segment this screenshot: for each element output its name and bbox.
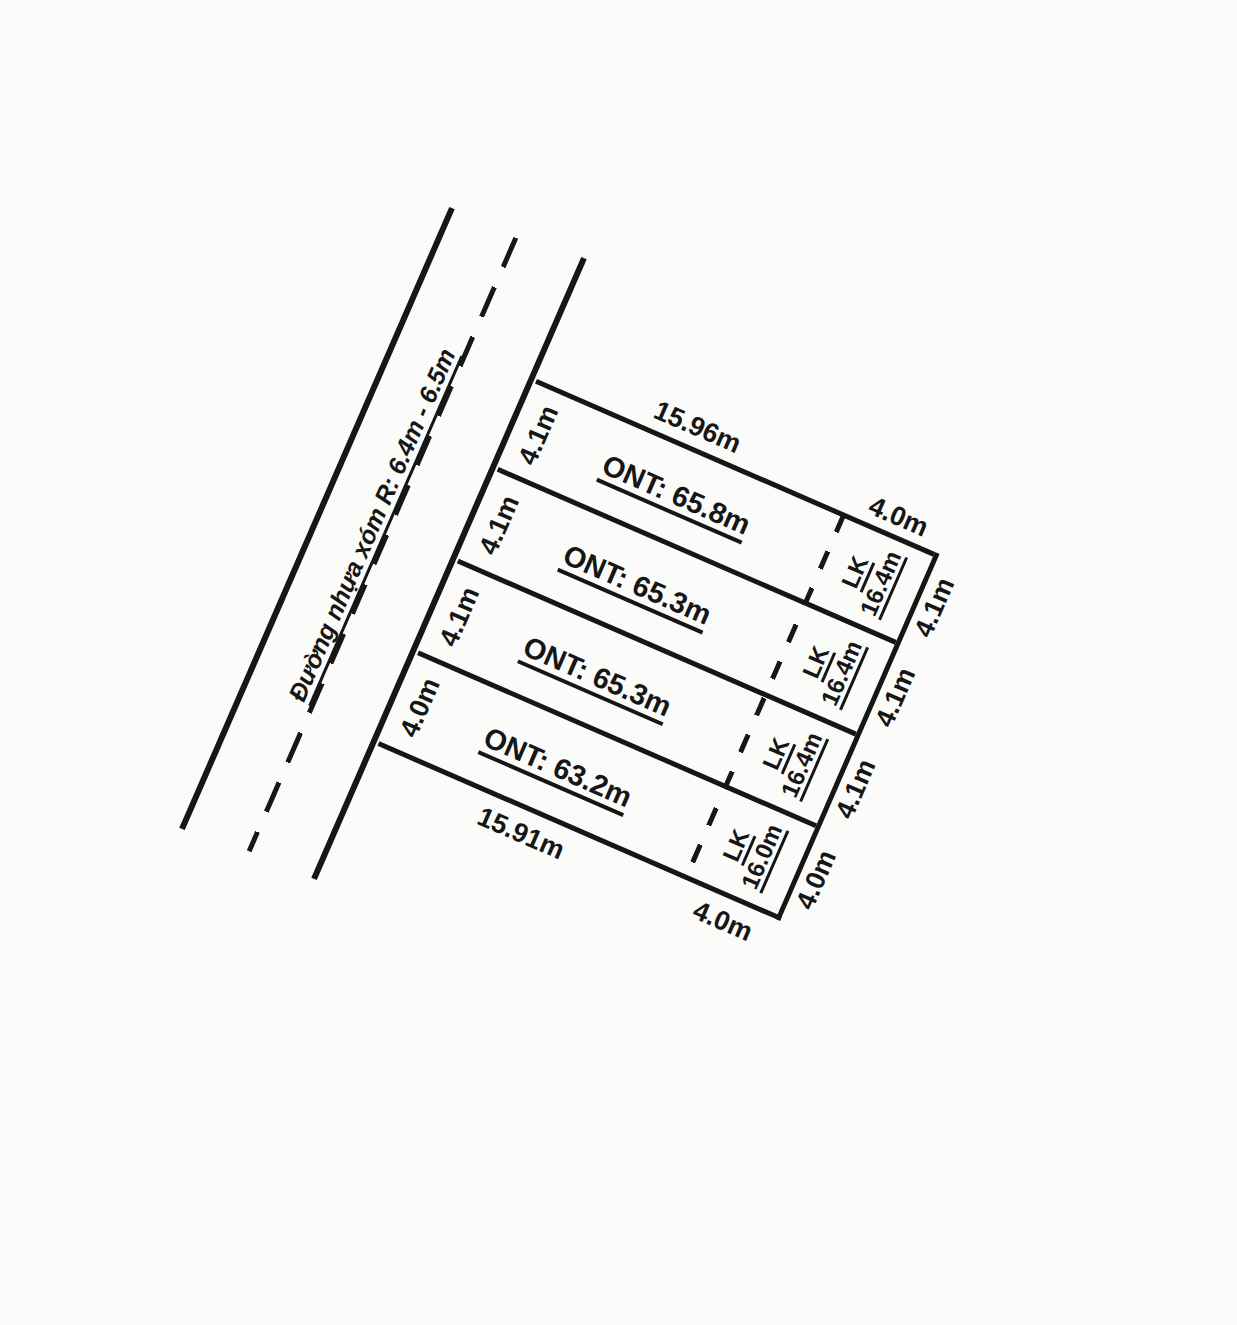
plot-4-lk-label: LK 16.0m [710, 809, 789, 894]
plot-1-lk-label: LK 16.4m [829, 536, 908, 621]
cadastral-sketch: Đường nhựa xóm R: 6.4m - 6.5m 15.96m 4.0… [0, 0, 1237, 1325]
plot-3-lk-label: LK 16.4m [750, 717, 829, 802]
plot-block: 15.96m 4.0m 4.1m ONT: 65.8m LK 16.4m 4.1… [378, 379, 940, 921]
dim-top-frontage: 15.96m [539, 347, 857, 508]
dim-bottom-frontage: 15.91m [362, 753, 680, 914]
plot-2-lk-label: LK 16.4m [790, 626, 869, 711]
